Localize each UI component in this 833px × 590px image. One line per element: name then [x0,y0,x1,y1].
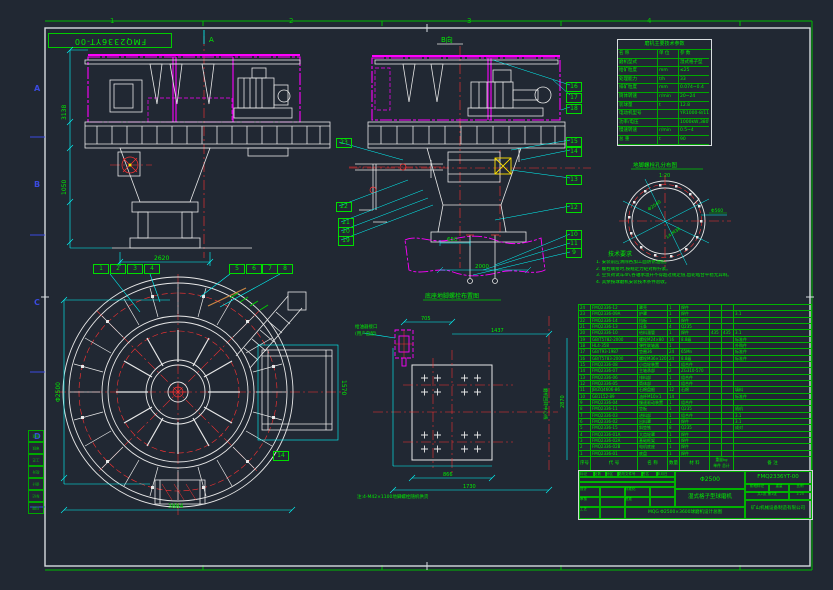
part-callout: 14 [566,147,582,157]
part-callout: 15 [566,137,582,147]
flow-arrows [208,288,268,310]
tb-company: 矿山机械设备制造有限公司 [744,499,812,519]
param-unit [658,119,679,128]
section-marker: A [204,30,214,44]
parameter-table-title: 磨机主要技术参数 [618,40,711,50]
parameter-table: 磨机主要技术参数 名 称 单 位 参 数 磨机型式 湿式格子型 给矿粒度 mm … [617,39,712,146]
side-table-cell: 校对 [28,466,44,478]
parameter-row: 给矿粒度 mm ≤25 [618,67,711,76]
param-label: 给矿粒度 [618,67,658,76]
param-label: 筒体转速 [618,93,658,102]
detail-title-text: 地脚螺栓孔分布图 [633,161,678,169]
dim-text: 2000 [475,264,489,270]
side-table-cell: 审核 [28,442,44,454]
tb-process: 工艺 [579,506,601,519]
param-label: 总 重 [618,136,658,145]
param-unit: r/min [658,93,679,102]
param-unit: t [658,102,679,111]
dim-text: Φ2500 [55,382,62,402]
dim-text: 650 [447,237,458,243]
part-callout: 4 [144,264,160,274]
part-callout: 2 [110,264,126,274]
discharge-box [155,480,205,504]
dim-text: 1437 [491,328,504,334]
technical-notes: 技术要求 1. 安装前应清除各加工面防锈油脂。2. 螺栓联接时,按规定力矩对称拧… [596,249,771,286]
dim-text: 3138 [61,105,68,120]
dimension-texts: Φ2500 3884 1570 [55,380,347,510]
param-value: 湿式格子型 [679,59,709,68]
view-title: B向 [437,35,463,44]
side-table-cell: 标记 [28,490,44,502]
dimension-texts: 705 1437 2870 866 1730 给油器接口 (用户自配) 磨机回转… [355,316,566,500]
bom-header-total: 总计 [722,463,730,468]
detail-title: 地脚螺栓孔分布图 1:20 [633,161,678,179]
machine-geometry [85,60,330,248]
view-foundation-plan: 底座地脚螺栓布置图 [353,288,583,500]
param-label: 慢速转速 [618,127,658,136]
param-label: 磨机型式 [618,59,658,68]
parameter-header-row: 名 称 单 位 参 数 [618,50,711,59]
bom-header-code: 代 号 [591,457,638,471]
param-label: 排矿粒度 [618,84,658,93]
view-side-elevation: B向 [343,30,598,285]
axis-label: 磨机回转中心线 [542,388,549,420]
dimensions [363,319,567,493]
side-table-cell: 设计 [28,478,44,490]
view-title-text: B向 [441,35,453,44]
part-callout: 7 [262,264,278,274]
bom-header-weight-label: 重量kg [715,457,727,462]
param-value: 1000kW,380V [679,119,709,128]
notes-body: 1. 安装前应清除各加工面防锈油脂。2. 螺栓联接时,按规定力矩对称拧紧。3. … [596,260,771,286]
detail-texts: Φ2040 14-M36 Φ560 [647,199,724,241]
part-callout: 12 [566,203,582,213]
part-callout: 19 [338,236,354,246]
zone-number-2: 2 [289,17,293,25]
side-table-cell: 日期 [28,502,44,514]
note-line: 4. 其余按球磨机安装技术条件验收。 [596,280,771,287]
centerline [110,36,204,258]
bom-header-qty: 数量 [668,457,680,471]
param-value: 0.074~0.4 [679,84,709,93]
parameter-row: 电动机型号 YR1000-8/1180 [618,110,711,119]
bom-header-single: 单件 [713,463,721,468]
dim-text: 1050 [61,180,68,195]
part-callout: 13 [566,175,582,185]
param-header-value: 参 数 [679,50,709,59]
zone-letter-a: A [34,84,40,93]
notes-title: 技术要求 [608,249,771,258]
param-unit: r/min [658,127,679,136]
parameter-row: 总 重 t 90 [618,136,711,145]
view-end-circular: Φ2500 3884 1570 [50,272,350,517]
parameter-row: 装球量 t 12.8 [618,102,711,111]
param-label: 处理能力 [618,76,658,85]
part-callout: 8 [277,264,293,274]
dim-text: 2620 [154,255,169,262]
part-callout: 9 [566,248,582,258]
part-label: 给油器接口 [355,323,378,330]
zone-number-3: 3 [467,17,471,25]
param-unit [658,59,679,68]
param-unit: t/h [658,76,679,85]
param-unit: mm [658,84,679,93]
side-table-cell: 批准 [28,430,44,442]
hood-outline [372,56,560,120]
pipe-valves [349,164,448,193]
part-callout: 17 [566,93,582,103]
zone-letter-b: B [34,180,40,189]
param-value: 90 [679,136,709,145]
parameter-table-body: 磨机型式 湿式格子型 给矿粒度 mm ≤25 处理能力 t/h 33 [618,59,711,145]
param-value: 20~24 [679,93,709,102]
dim-text: 1570 [340,380,347,395]
lubricator-part [395,330,413,366]
bom-header-name: 名 称 [638,457,668,471]
param-value: YR1000-8/1180 [679,110,709,119]
centerlines [373,316,558,473]
part-callout: 3 [127,264,143,274]
part-callout: 6 [246,264,262,274]
tb-process-sign [599,506,626,519]
param-value: ≤25 [679,67,709,76]
dim-text: 14-M36 [665,226,682,241]
param-unit [658,110,679,119]
part-callout: 5 [229,264,245,274]
part-callout: 22 [336,202,352,212]
part-callout: 18 [566,104,582,114]
bom-header-note: 备 注 [734,457,812,471]
bom-table-body: 24 FMQ2336-12 罩壳 1 焊件 23 FMQ2336-09A 护罩 … [579,305,812,457]
param-label: 电动机型号 [618,110,658,119]
binding-side-table: 批准审核工艺校对设计标记日期 [28,430,44,514]
param-label: 功率/电压 [618,119,658,128]
param-value: 0.5~4 [679,127,709,136]
view-title: 底座地脚螺栓布置图 [423,292,501,300]
foundation-note: 注:4-M42×1100地脚螺栓随机供货 [357,493,429,500]
param-value: 33 [679,76,709,85]
bom-header-no: 序号 [579,457,591,471]
bolt-marks [421,375,481,453]
param-label: 装球量 [618,102,658,111]
parameter-row: 功率/电压 1000kW,380V [618,119,711,128]
zone-letter-c: C [34,298,40,307]
dim-text: 705 [421,316,431,322]
param-unit: mm [658,67,679,76]
parameter-row: 处理能力 t/h 33 [618,76,711,85]
cad-drawing-canvas[interactable]: A B C D 1 2 3 4 FMQ2336YT-00 批准审核工艺校对设计标… [0,0,833,590]
dim-text: 866 [443,472,453,478]
bom-header-row: 序号 代 号 名 称 数量 材 料 重量kg 单件 总计 备 注 [579,457,812,471]
view-front-elevation: A [52,30,342,288]
parameter-row: 排矿粒度 mm 0.074~0.4 [618,84,711,93]
bom-header-material: 材 料 [680,457,710,471]
part-callout: 23 [336,138,352,148]
part-callout: 16 [566,82,582,92]
dim-text: 2870 [560,395,566,408]
feed-chute [236,292,306,368]
param-header-unit: 单 位 [658,50,679,59]
bom-table: 24 FMQ2336-12 罩壳 1 焊件 23 FMQ2336-09A 护罩 … [578,304,812,471]
part-label: (用户自配) [355,330,377,337]
parameter-row: 磨机型式 湿式格子型 [618,59,711,68]
param-unit: t [658,136,679,145]
tb-product2: 湿式格子型球磨机 [674,488,746,508]
zone-number-1: 1 [110,17,114,25]
dim-text: 1730 [463,484,476,490]
bom-header-weight: 重量kg 单件 总计 [710,457,734,471]
part-callout: 1 [93,264,109,274]
param-header-name: 名 称 [618,50,658,59]
section-label: A [209,36,214,44]
side-table-cell: 工艺 [28,454,44,466]
dim-text: 3884 [168,503,183,510]
param-value: 12.8 [679,102,709,111]
view-title-text: 底座地脚螺栓布置图 [425,292,479,300]
title-block: 标记 处数 分区 更改文件号 签名 年月日 设计 标准化 审核 批准 工艺 MQ… [578,470,813,520]
detail-scale: 1:20 [659,173,670,179]
zone-number-4: 4 [647,17,651,25]
parameter-row: 慢速转速 r/min 0.5~4 [618,127,711,136]
coupling-yellow [495,158,511,174]
parameter-row: 筒体转速 r/min 20~24 [618,93,711,102]
part-callout: 14 [273,451,289,461]
